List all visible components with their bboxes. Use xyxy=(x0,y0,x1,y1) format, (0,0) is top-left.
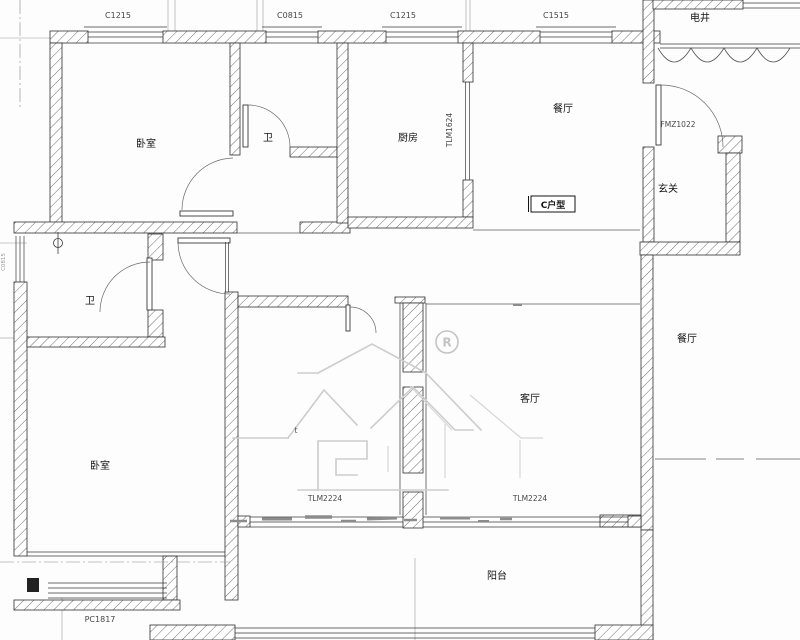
window-tag-pc1817: PC1817 xyxy=(85,615,116,624)
window-tag-c1515: C1515 xyxy=(543,11,569,20)
room-label-balcony: 阳台 xyxy=(487,569,507,582)
column-block xyxy=(27,578,39,592)
watermark-house-logo: R t xyxy=(230,305,543,521)
door-tag-balcony-slide-right: TLM2224 xyxy=(512,494,548,503)
room-label-dining-top: 餐厅 xyxy=(553,102,573,115)
door-tag-kitchen-slide: TLM1624 xyxy=(445,113,454,149)
window-tag-c1215-mid: C1215 xyxy=(390,11,416,20)
unit-type-tag: C户型 xyxy=(529,196,576,212)
watermark-remnant-dashes xyxy=(230,305,522,521)
room-labels: 卧室 卫 厨房 餐厅 电井 玄关 卫 卧室 客厅 餐厅 阳台 xyxy=(85,11,710,582)
room-label-bedroom-bottom: 卧室 xyxy=(90,459,110,472)
registered-trademark-letter: R xyxy=(442,336,451,350)
room-label-living-room: 客厅 xyxy=(520,392,540,405)
drain-symbol xyxy=(54,232,63,254)
beam-lines xyxy=(237,230,640,304)
window-tag-c0815-top: C0815 xyxy=(277,11,303,20)
walls xyxy=(14,0,743,640)
room-label-kitchen: 厨房 xyxy=(398,131,418,144)
room-label-bedroom-top: 卧室 xyxy=(136,137,156,150)
floor-plan-canvas: R t C户型 卧室 卫 厨房 餐厅 电井 玄关 卫 卧室 客厅 餐厅 xyxy=(0,0,800,640)
floor-plan-drawing: R t C户型 卧室 卫 厨房 餐厅 电井 玄关 卫 卧室 客厅 餐厅 xyxy=(0,0,800,640)
room-label-foyer: 玄关 xyxy=(658,182,678,195)
window-tag-c1215-left: C1215 xyxy=(105,11,131,20)
room-label-bathroom-mid: 卫 xyxy=(85,296,95,307)
doors xyxy=(100,85,723,333)
room-label-dining-right: 餐厅 xyxy=(677,332,697,345)
room-label-electric-shaft: 电井 xyxy=(690,11,710,24)
window-tag-left-edge: C0815 xyxy=(1,253,7,271)
room-label-bathroom-top: 卫 xyxy=(263,133,273,144)
door-tag-entry: FMZ1022 xyxy=(660,120,695,129)
unit-type-label: C户型 xyxy=(541,199,566,211)
door-tag-balcony-slide-left: TLM2224 xyxy=(307,494,343,503)
watermark-small-mark: t xyxy=(294,426,297,435)
corridor-scallop-symbol xyxy=(658,48,790,62)
